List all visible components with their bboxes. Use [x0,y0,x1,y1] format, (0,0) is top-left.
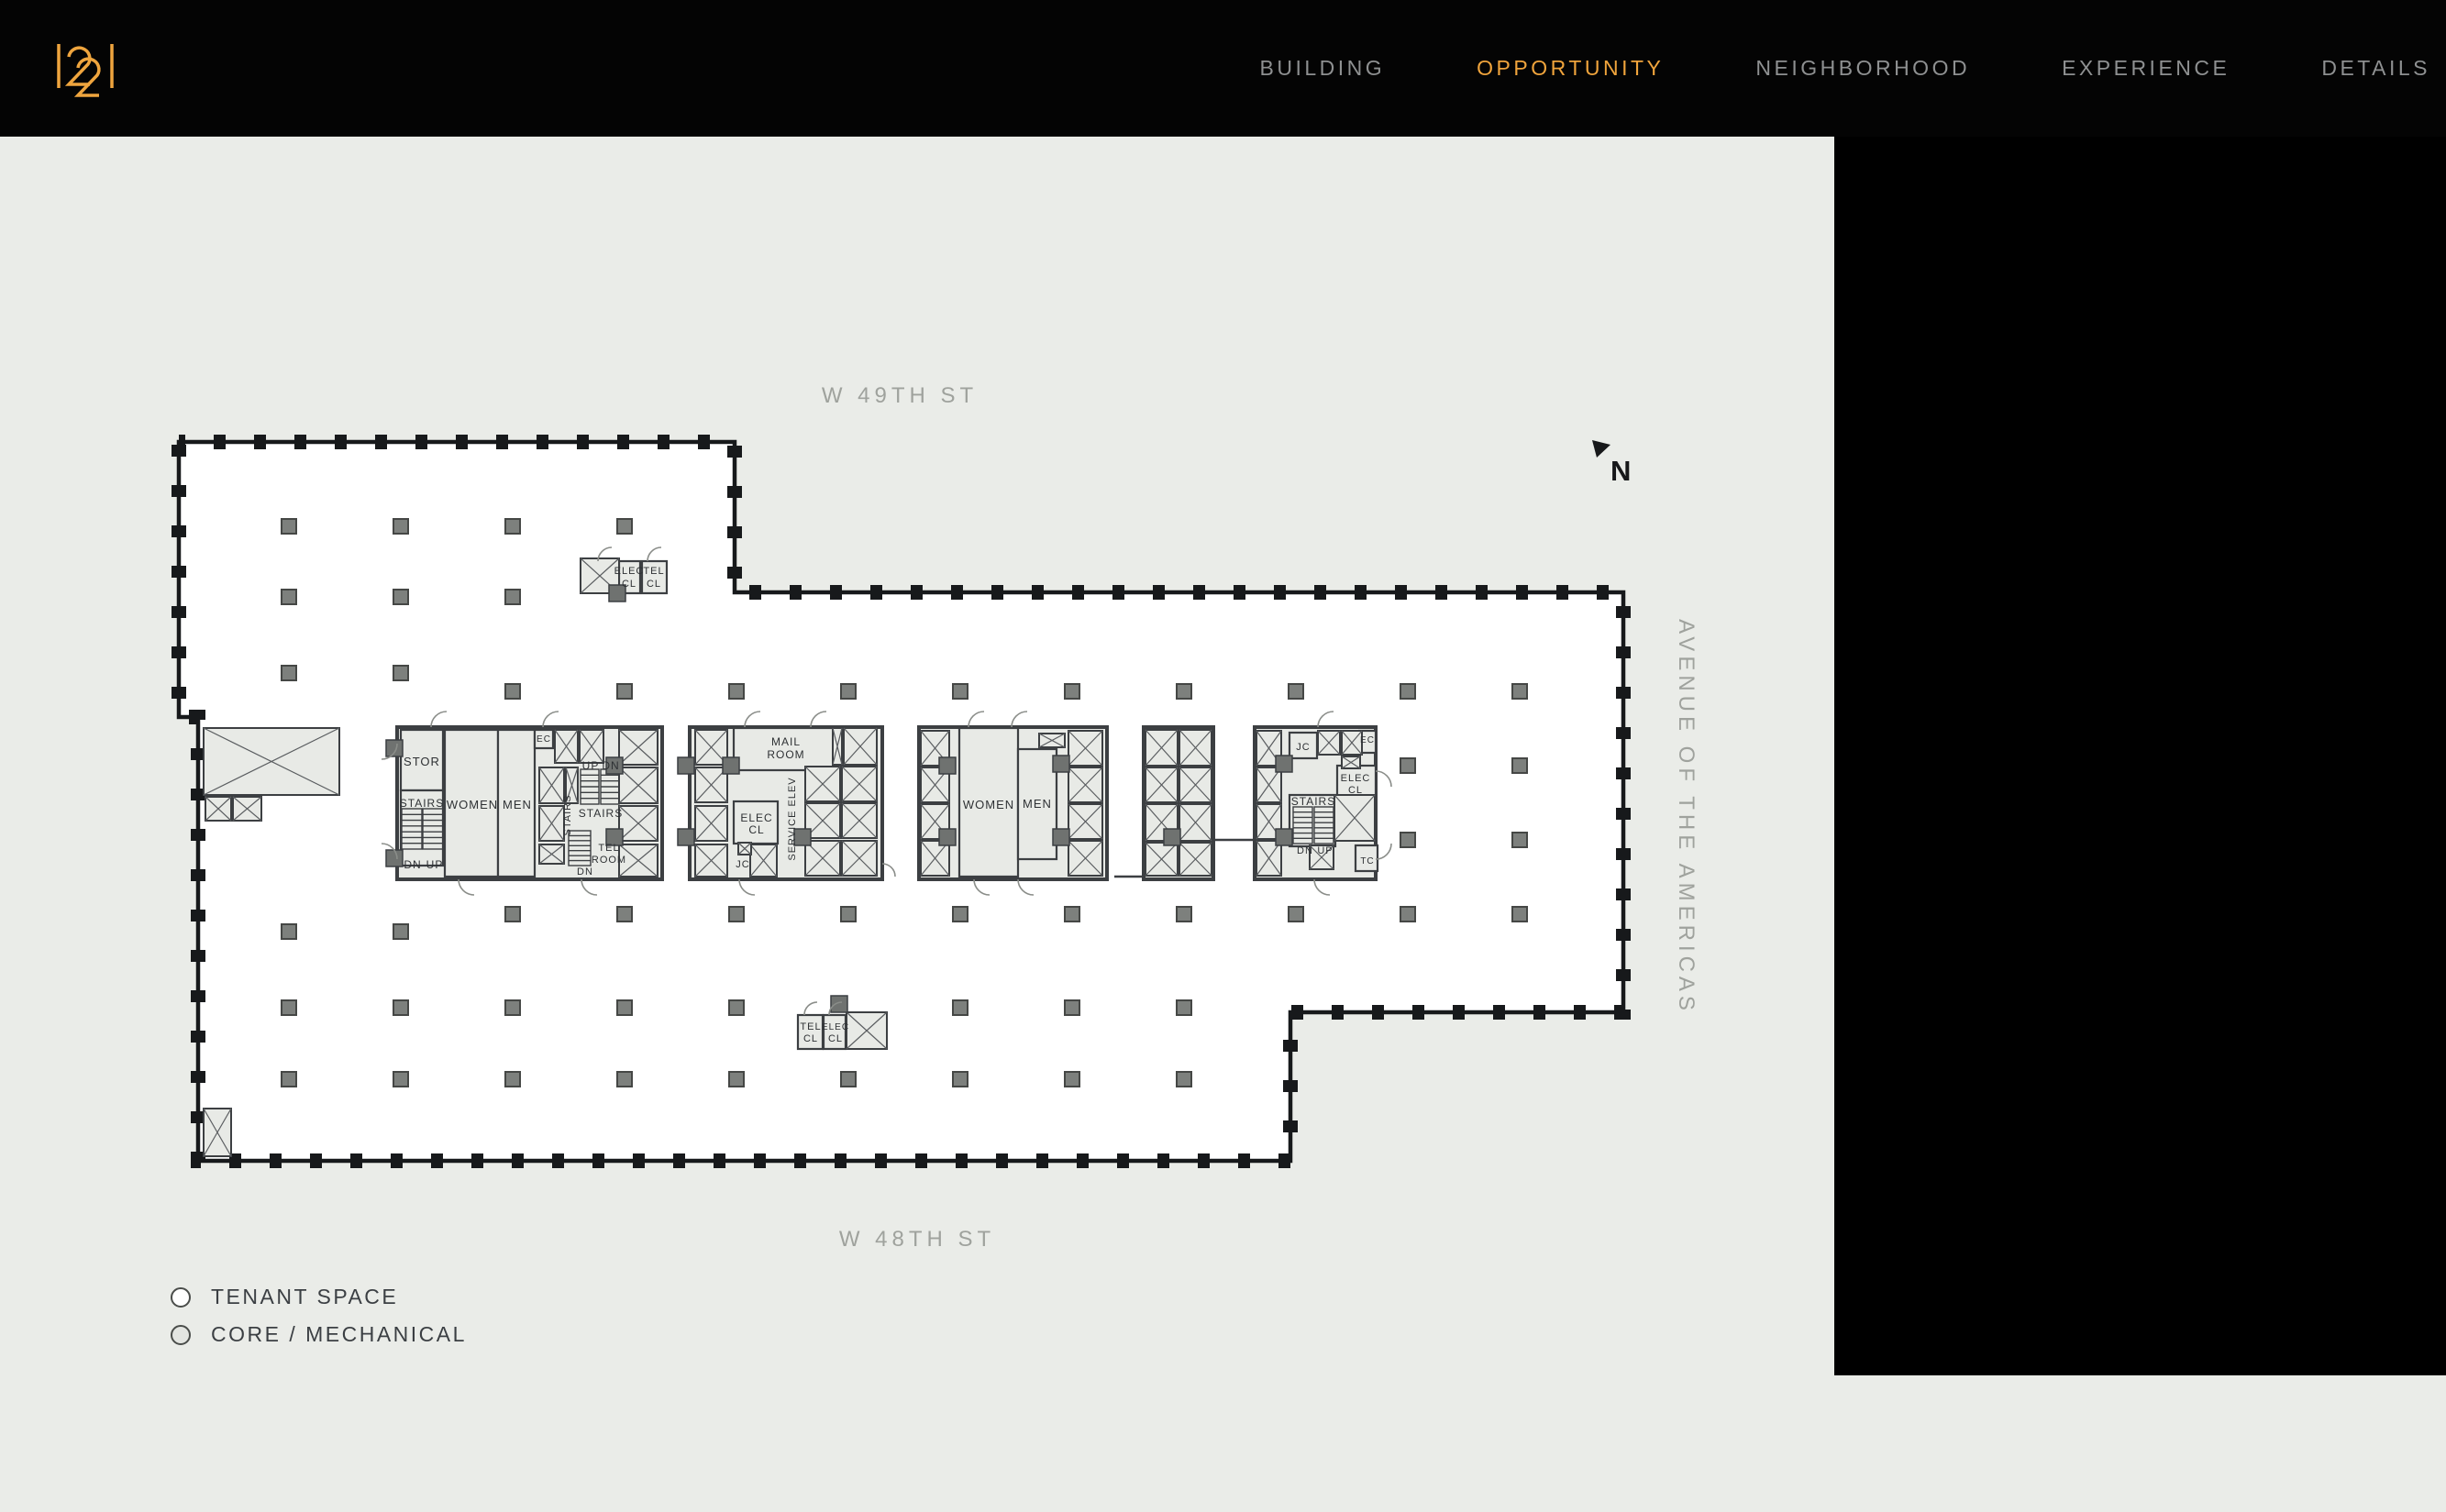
plan-label: TEL [643,566,664,577]
shaft-box [1068,731,1102,766]
door-arc [581,879,597,895]
shaft-x [1146,804,1178,841]
shaft-x [921,767,949,802]
shaft-x [1256,767,1281,802]
plan-label: EC [537,734,551,745]
shaft-box [738,843,751,855]
column-dot [729,1072,744,1087]
shaft-box [1068,804,1102,839]
shaft-box [921,731,949,766]
shaft-x [695,730,727,765]
nav-item-neighborhood[interactable]: NEIGHBORHOOD [1755,56,1970,81]
shaft-box [555,730,578,763]
column-dot [841,1072,856,1087]
north-arrow-icon: N [1587,435,1660,490]
shaft-box [842,767,877,801]
column-dot [505,684,520,699]
column-dot [1177,1072,1191,1087]
column-dot [282,924,296,939]
wall-connector [939,829,956,845]
column-dot [282,1000,296,1015]
shaft-box [1179,804,1212,841]
door-arc [882,864,895,877]
shaft-box [233,797,261,821]
plan-label: CL [803,1033,818,1044]
column-dot [953,1000,968,1015]
stair-run [1293,807,1312,844]
shaft-x [1179,730,1212,766]
column-dot [1400,684,1415,699]
shaft-x [1334,795,1375,841]
door-arc [1314,879,1330,895]
shaft-box [805,803,840,838]
shaft-x [204,1109,231,1156]
shaft-box [1310,845,1334,869]
shaft-box [833,728,842,765]
wall-connector [678,757,694,774]
plan-label: CL [1348,785,1363,796]
shaft-x [750,844,777,877]
core-room [1289,795,1335,846]
core-room [1337,766,1376,799]
shaft-x [842,841,877,876]
plan-label: STAIRS [562,795,573,836]
tenant-space-swatch-icon [171,1287,191,1308]
door-arc [974,879,990,895]
nav-item-details[interactable]: DETAILS [2321,56,2430,81]
column-dot [1512,907,1527,922]
column-dot [1065,907,1079,922]
stair-run [581,769,599,804]
legend-row-core-mechanical[interactable]: CORE / MECHANICAL [171,1322,467,1347]
core-room [798,1015,823,1049]
logo-1221-icon[interactable] [53,29,117,103]
shaft-box [1179,843,1212,876]
shaft-box [844,728,877,765]
core-room [1018,749,1057,859]
shaft-box [204,1109,231,1156]
shaft-x [233,797,261,821]
shaft-x [842,767,877,801]
column-dot [1512,833,1527,847]
shaft-box [619,806,658,841]
shaft-x [842,803,877,838]
shaft-x [1068,731,1102,766]
shaft-x [921,841,949,876]
shaft-box [842,841,877,876]
core-block [919,727,1107,879]
plan-label: DN [602,759,619,772]
door-arc [431,712,447,727]
shaft-x [833,728,842,765]
door-arc [829,1002,842,1015]
shaft-x [805,803,840,838]
street-label-w49th: W 49TH ST [822,383,978,409]
plan-label: TEL [800,1021,821,1032]
shaft-box [580,730,603,763]
wall-connector [939,757,956,774]
shaft-x [580,730,603,763]
plan-label: STAIRS [1291,795,1335,808]
core-block [1144,727,1213,879]
column-dot [505,907,520,922]
core-room [445,730,498,877]
shaft-x [805,803,840,838]
top-nav-bar: BUILDING OPPORTUNITY NEIGHBORHOOD EXPERI… [0,0,2446,137]
door-arc [811,712,826,727]
column-dot [1289,684,1303,699]
shaft-x [1334,795,1375,841]
core-room [642,561,667,593]
shaft-box [1146,804,1178,841]
wall-connector [1276,756,1292,772]
legend-row-tenant-space[interactable]: TENANT SPACE [171,1285,467,1309]
core-room [535,730,553,748]
plan-label: UP [1317,845,1333,856]
shaft-x [1068,804,1102,839]
door-arc [598,547,612,561]
shaft-x [1179,767,1212,802]
shaft-x [205,797,231,821]
column-dot [282,1072,296,1087]
column-dot [505,519,520,534]
column-dot [1065,684,1079,699]
shaft-box [1068,767,1102,802]
column-dot [393,519,408,534]
shaft-x [921,804,949,839]
column-dot [1065,1072,1079,1087]
column-dot [505,1072,520,1087]
shaft-x [1342,756,1360,768]
column-dot [1177,1000,1191,1015]
shaft-x [1318,731,1340,755]
shaft-x [1068,841,1102,876]
shaft-x [539,806,564,841]
stair-run [423,809,443,849]
plan-label: CL [748,823,764,836]
column-dot [393,666,408,680]
plan-label: ELEC [614,566,645,577]
nav-item-building[interactable]: BUILDING [1260,56,1386,81]
door-arc [647,547,661,561]
shaft-x [1068,841,1102,876]
column-dot [1512,758,1527,773]
door-arc [543,712,559,727]
shaft-x [1179,843,1212,876]
street-label-avenue-of-the-americas: AVENUE OF THE AMERICAS [1673,619,1699,1015]
core-room [1356,845,1378,871]
column-dot [505,1000,520,1015]
shaft-box [1256,804,1281,839]
shaft-box [805,767,840,801]
shaft-x [805,841,840,876]
shaft-box [1256,767,1281,802]
shaft-box [1068,841,1102,876]
door-arc [382,844,397,859]
shaft-x [539,844,564,864]
street-label-w48th: W 48TH ST [839,1227,995,1253]
stair-run [1314,807,1334,844]
column-dot [729,1000,744,1015]
shaft-x [833,728,842,765]
plan-label: CL [828,1033,843,1044]
shaft-x [1146,843,1178,876]
shaft-x [1068,767,1102,802]
wall-connector [1053,756,1069,772]
plan-label: TC [1360,856,1374,866]
shaft-box [619,844,658,877]
shaft-x [1068,731,1102,766]
shaft-box [1342,731,1362,755]
floorplan-outline [179,442,1623,1161]
column-dot [1177,684,1191,699]
shaft-x [1146,804,1178,841]
shaft-box [1146,843,1178,876]
shaft-box [566,767,578,803]
wall-connector [609,585,625,601]
plan-label: STAIRS [400,797,444,810]
column-dot [617,1000,632,1015]
core-room [401,790,443,866]
shaft-x [233,797,261,821]
shaft-x [555,730,578,763]
shaft-box [581,558,619,593]
shaft-box [695,806,727,841]
door-arc [739,879,755,895]
north-arrow-triangle [1592,440,1610,458]
shaft-x [842,803,877,838]
shaft-x [539,767,564,803]
column-dot [1400,758,1415,773]
shaft-x [1256,731,1281,766]
shaft-x [695,844,727,877]
plan-label: ELEC [1341,773,1371,784]
legend-label: CORE / MECHANICAL [211,1322,467,1347]
column-dot [393,590,408,604]
column-dot [953,907,968,922]
shaft-x [566,767,578,803]
column-dot [1289,907,1303,922]
shaft-x [1179,843,1212,876]
shaft-x [619,844,658,877]
shaft-x [695,844,727,877]
column-dot [1177,907,1191,922]
column-dot [1065,1000,1079,1015]
door-arc [459,879,474,895]
plan-label: JC [1296,742,1310,753]
column-dot [617,1072,632,1087]
shaft-x [204,1109,231,1156]
shaft-x [1318,731,1340,755]
plan-label: ELEC [740,811,772,824]
plan-label: JC [736,859,749,870]
wall-connector [386,850,403,866]
shaft-box [842,803,877,838]
shaft-x [539,806,564,841]
shaft-x [1146,730,1178,766]
shaft-box [1334,795,1375,841]
shaft-x [1256,731,1281,766]
nav-item-opportunity[interactable]: OPPORTUNITY [1477,56,1664,81]
shaft-x [805,841,840,876]
core-room [734,801,778,844]
wall-connector [606,757,623,774]
plan-label: ROOM [592,855,626,866]
shaft-x [1310,845,1334,869]
column-dot [1512,684,1527,699]
column-dot [841,684,856,699]
shaft-x [842,767,877,801]
shaft-x [1146,730,1178,766]
column-dot [1400,907,1415,922]
shaft-x [566,767,578,803]
shaft-box [1179,730,1212,766]
shaft-box [1146,767,1178,802]
plan-label: SERVICE ELEV [787,777,798,860]
shaft-x [1179,804,1212,841]
stair-run [601,769,619,804]
shaft-box [805,841,840,876]
core-room [401,730,443,790]
column-dot [617,907,632,922]
plan-label: CL [647,579,661,590]
shaft-x [539,844,564,864]
shaft-x [204,728,339,795]
shaft-box [1318,731,1340,755]
shaft-box [539,844,564,864]
wall-connector [606,829,623,845]
shaft-x [1146,767,1178,802]
shaft-x [842,841,877,876]
shaft-box [539,806,564,841]
shaft-box [1256,731,1281,766]
column-dot [729,684,744,699]
shaft-box [204,728,339,795]
plan-label: UP [426,858,444,871]
shaft-box [1256,841,1281,876]
shaft-box [539,767,564,803]
shaft-x [619,844,658,877]
shaft-x [1039,734,1065,747]
shaft-x [844,728,877,765]
shaft-box [750,844,777,877]
column-dot [953,684,968,699]
core-mechanical-swatch-icon [171,1325,191,1345]
plan-label: MAIL [771,735,801,748]
shaft-box [921,767,949,802]
shaft-box [847,1012,887,1049]
plan-label: STAIRS [579,807,623,820]
column-dot [282,666,296,680]
shaft-x [205,797,231,821]
column-dot [1400,833,1415,847]
shaft-x [619,767,658,803]
shaft-x [1310,845,1334,869]
shaft-x [1256,841,1281,876]
door-arc [1018,879,1034,895]
wall-connector [831,996,847,1012]
column-dot [953,1072,968,1087]
shaft-x [580,730,603,763]
plan-label: WOMEN [447,798,498,811]
shaft-x [1146,843,1178,876]
core-room [734,728,836,770]
shaft-x [1256,841,1281,876]
column-dot [393,1072,408,1087]
wall-connector [678,829,694,845]
shaft-x [750,844,777,877]
shaft-x [695,767,727,802]
shaft-x [738,843,751,855]
shaft-box [1179,767,1212,802]
shaft-x [1179,767,1212,802]
column-dot [393,1000,408,1015]
door-arc [1318,712,1334,727]
core-block [397,727,662,879]
shaft-x [1068,767,1102,802]
shaft-x [204,728,339,795]
shaft-x [695,806,727,841]
wall-connector [723,757,739,774]
core-block [690,727,882,879]
right-black-panel [1834,137,2446,1375]
plan-label: ROOM [767,748,804,761]
shaft-x [1342,731,1362,755]
shaft-box [619,767,658,803]
wall-connector [1276,829,1292,845]
door-arc [382,744,397,759]
perimeter-columns [179,442,1623,1161]
plan-label: WOMEN [963,798,1014,811]
shaft-x [555,730,578,763]
shaft-x [619,806,658,841]
core-room [1359,731,1376,753]
shaft-x [1256,804,1281,839]
shaft-x [581,558,619,593]
shaft-x [695,806,727,841]
shaft-box [1342,756,1360,768]
shaft-box [921,804,949,839]
shaft-x [539,767,564,803]
shaft-x [844,728,877,765]
shaft-box [695,844,727,877]
core-room [619,561,640,593]
shaft-x [847,1012,887,1049]
wall-connector [386,740,403,756]
column-dot [729,907,744,922]
shaft-x [1039,734,1065,747]
legend: TENANT SPACE CORE / MECHANICAL [171,1285,467,1360]
shaft-x [619,806,658,841]
wall-connector [1164,829,1180,845]
column-dot [617,519,632,534]
north-letter: N [1610,455,1632,487]
plan-label: EC [1360,735,1375,745]
shaft-x [921,804,949,839]
shaft-box [1146,730,1178,766]
wall-connector [1053,829,1069,845]
shaft-box [695,767,727,802]
shaft-box [205,797,231,821]
nav-item-experience[interactable]: EXPERIENCE [2062,56,2230,81]
column-dot [617,684,632,699]
shaft-x [619,730,658,765]
column-dot [282,519,296,534]
shaft-x [1179,730,1212,766]
shaft-x [738,843,751,855]
wall-connector [794,829,811,845]
column-dot [841,907,856,922]
